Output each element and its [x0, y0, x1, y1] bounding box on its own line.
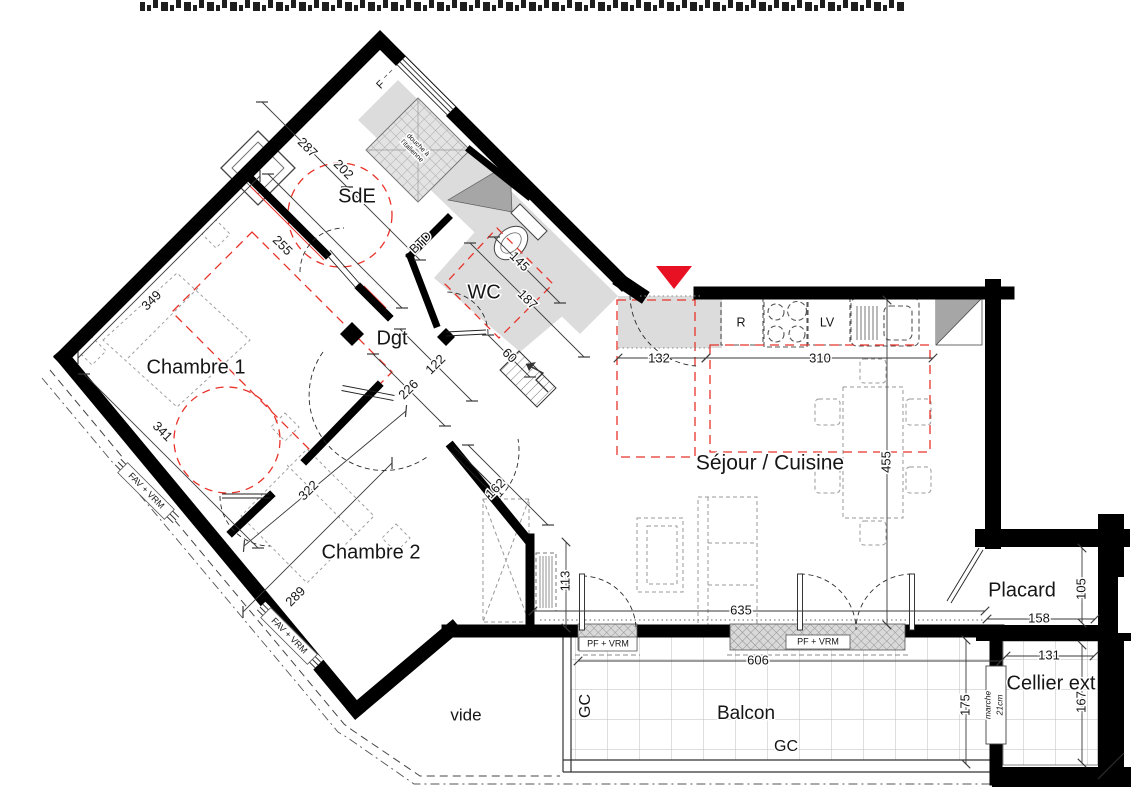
dimension-value: 341 — [150, 418, 176, 444]
balcony-door-arc-2 — [800, 574, 856, 630]
kitchen-strip — [706, 296, 722, 348]
dimension-value: 105 — [1073, 578, 1088, 600]
wall-segment — [63, 40, 380, 357]
step-height-label: 21cm — [994, 695, 1004, 717]
dimension-value: 455 — [878, 451, 893, 473]
dimension-value: 132 — [648, 350, 670, 365]
dimension-value: 113 — [557, 571, 572, 592]
room-label-wc: WC — [467, 281, 500, 303]
entrance-floor — [618, 296, 712, 348]
wall-segment — [356, 629, 452, 710]
entrance-marker-icon — [656, 266, 692, 289]
window-pf-1: PF + VRM — [579, 637, 637, 651]
radiator — [536, 553, 556, 611]
gc-bottom-label: GC — [774, 738, 798, 755]
room-label-vide: vide — [450, 705, 481, 724]
window-pf-1-text: PF + VRM — [587, 638, 629, 648]
armchair — [637, 518, 683, 592]
wall-notch — [1118, 577, 1131, 633]
turning-circle-chambre-1 — [174, 387, 280, 493]
turning-circle-sde — [288, 163, 392, 267]
dimension-value: 606 — [747, 652, 769, 667]
room-label-chambre-1: Chambre 1 — [147, 356, 246, 378]
dimension-tick — [405, 405, 406, 417]
dimension-value: 635 — [730, 602, 752, 617]
fridge-label: R — [736, 315, 745, 329]
dimension-value: 289 — [282, 583, 308, 609]
dimension-tick — [243, 540, 244, 552]
dimension-value: 202 — [331, 156, 357, 182]
dimension-line — [78, 176, 260, 358]
floor-plan-drawing: FAV + VRMFAV + VRMPF + VRMPF + VRM SdEWC… — [0, 0, 1131, 800]
balcony — [563, 637, 1098, 772]
wall-segment — [360, 288, 388, 316]
balcony-door-arc-1 — [582, 576, 636, 630]
wall-segment — [306, 386, 378, 460]
window-f-label: F — [374, 78, 387, 91]
step-label: marche — [982, 691, 992, 720]
cropped-text-band — [140, 0, 905, 11]
dimension-value: 131 — [1038, 647, 1060, 662]
chambre-1-door-arc — [309, 352, 427, 470]
dimension-value: 158 — [1028, 610, 1050, 625]
window-pf-2-text: PF + VRM — [797, 636, 839, 646]
room-label-sde: SdE — [338, 185, 376, 207]
room-label-cellier-ext: Cellier ext — [1007, 672, 1096, 694]
duct-shaft-right — [936, 298, 982, 345]
room-label-dgt: Dgt — [376, 327, 408, 349]
window-pf-2: PF + VRM — [786, 635, 850, 649]
room-label-sejour-cuisine: Séjour / Cuisine — [696, 452, 844, 475]
drainer — [857, 306, 877, 340]
dimension-value: 167 — [1073, 691, 1088, 713]
dimension-value: 349 — [138, 287, 164, 313]
sink-bowl — [884, 306, 912, 340]
room-label-balcon: Balcon — [717, 703, 775, 724]
dimension-value: 175 — [957, 694, 972, 716]
dimension-line — [244, 411, 406, 546]
dimension-value: 322 — [295, 477, 321, 503]
window-fav-2: FAV + VRM — [261, 608, 318, 665]
floor-plan-canvas: FAV + VRMFAV + VRMPF + VRMPF + VRM SdEWC… — [0, 0, 1131, 800]
wall-segment — [410, 256, 436, 324]
gc-left-label: GC — [577, 694, 594, 718]
dimension-value: 310 — [809, 350, 831, 365]
room-label-chambre-2: Chambre 2 — [322, 541, 421, 563]
wall-segment — [232, 496, 270, 532]
dishwasher-label: LV — [820, 315, 835, 329]
room-label-placard: Placard — [988, 579, 1056, 601]
